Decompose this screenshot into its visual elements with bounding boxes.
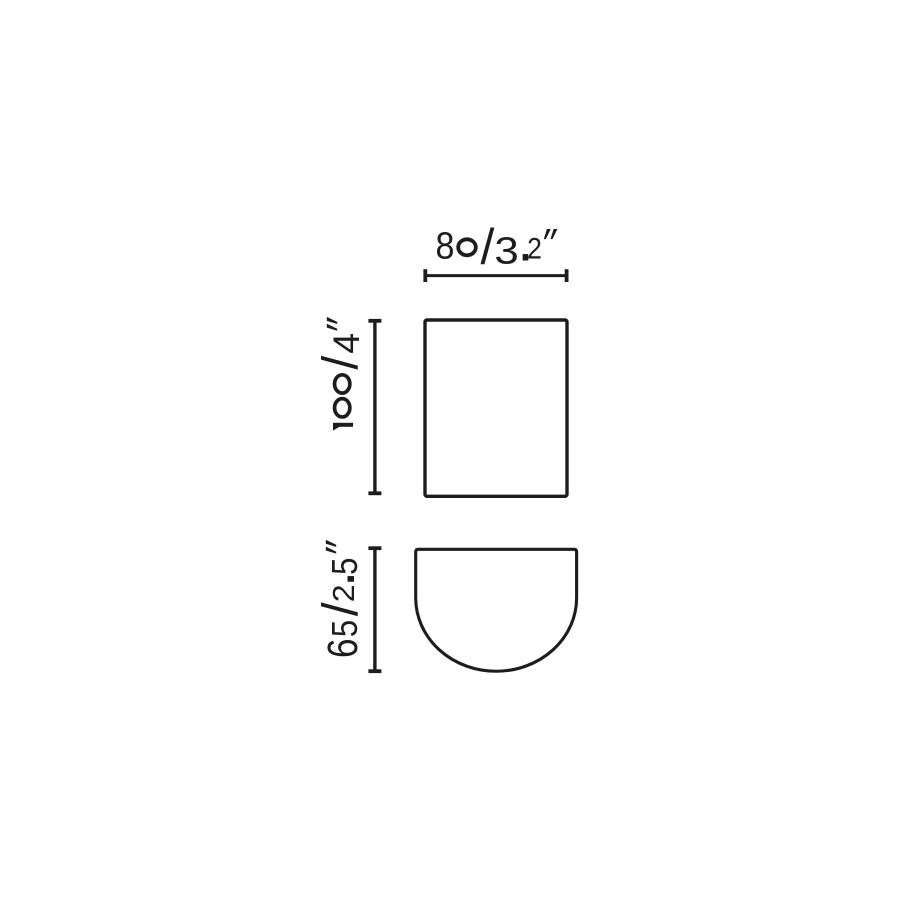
svg-text:5: 5 bbox=[325, 620, 366, 637]
svg-text:8: 8 bbox=[436, 224, 455, 267]
svg-text:/: / bbox=[313, 602, 369, 616]
svg-text:3: 3 bbox=[494, 230, 518, 272]
svg-text:6: 6 bbox=[319, 639, 367, 658]
svg-text:/: / bbox=[313, 356, 369, 370]
svg-text:/: / bbox=[481, 219, 495, 275]
